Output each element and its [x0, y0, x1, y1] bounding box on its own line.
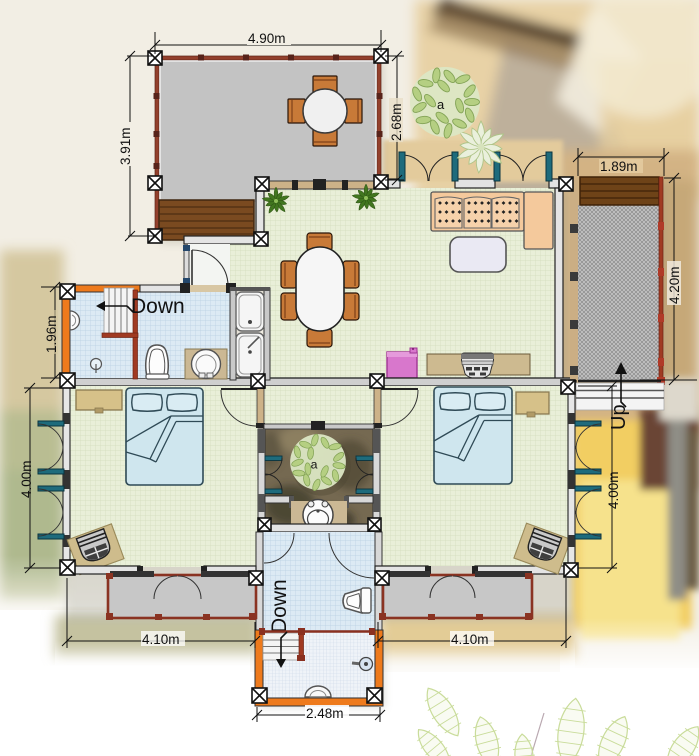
svg-text:1.96m: 1.96m [44, 315, 59, 353]
svg-text:4.10m: 4.10m [451, 632, 489, 647]
svg-text:a: a [437, 97, 445, 112]
svg-text:Down: Down [268, 579, 291, 633]
svg-text:4.90m: 4.90m [248, 31, 286, 46]
svg-text:a: a [311, 458, 318, 472]
svg-text:4.10m: 4.10m [142, 632, 180, 647]
svg-text:2.48m: 2.48m [306, 706, 344, 721]
svg-text:Up: Up [608, 404, 630, 430]
svg-text:4.00m: 4.00m [19, 460, 34, 498]
svg-text:4.20m: 4.20m [667, 266, 682, 304]
svg-text:3.91m: 3.91m [118, 127, 133, 165]
svg-text:Down: Down [131, 295, 185, 318]
svg-text:4.00m: 4.00m [606, 471, 621, 509]
svg-text:1.89m: 1.89m [600, 159, 638, 174]
svg-text:2.68m: 2.68m [389, 103, 404, 141]
